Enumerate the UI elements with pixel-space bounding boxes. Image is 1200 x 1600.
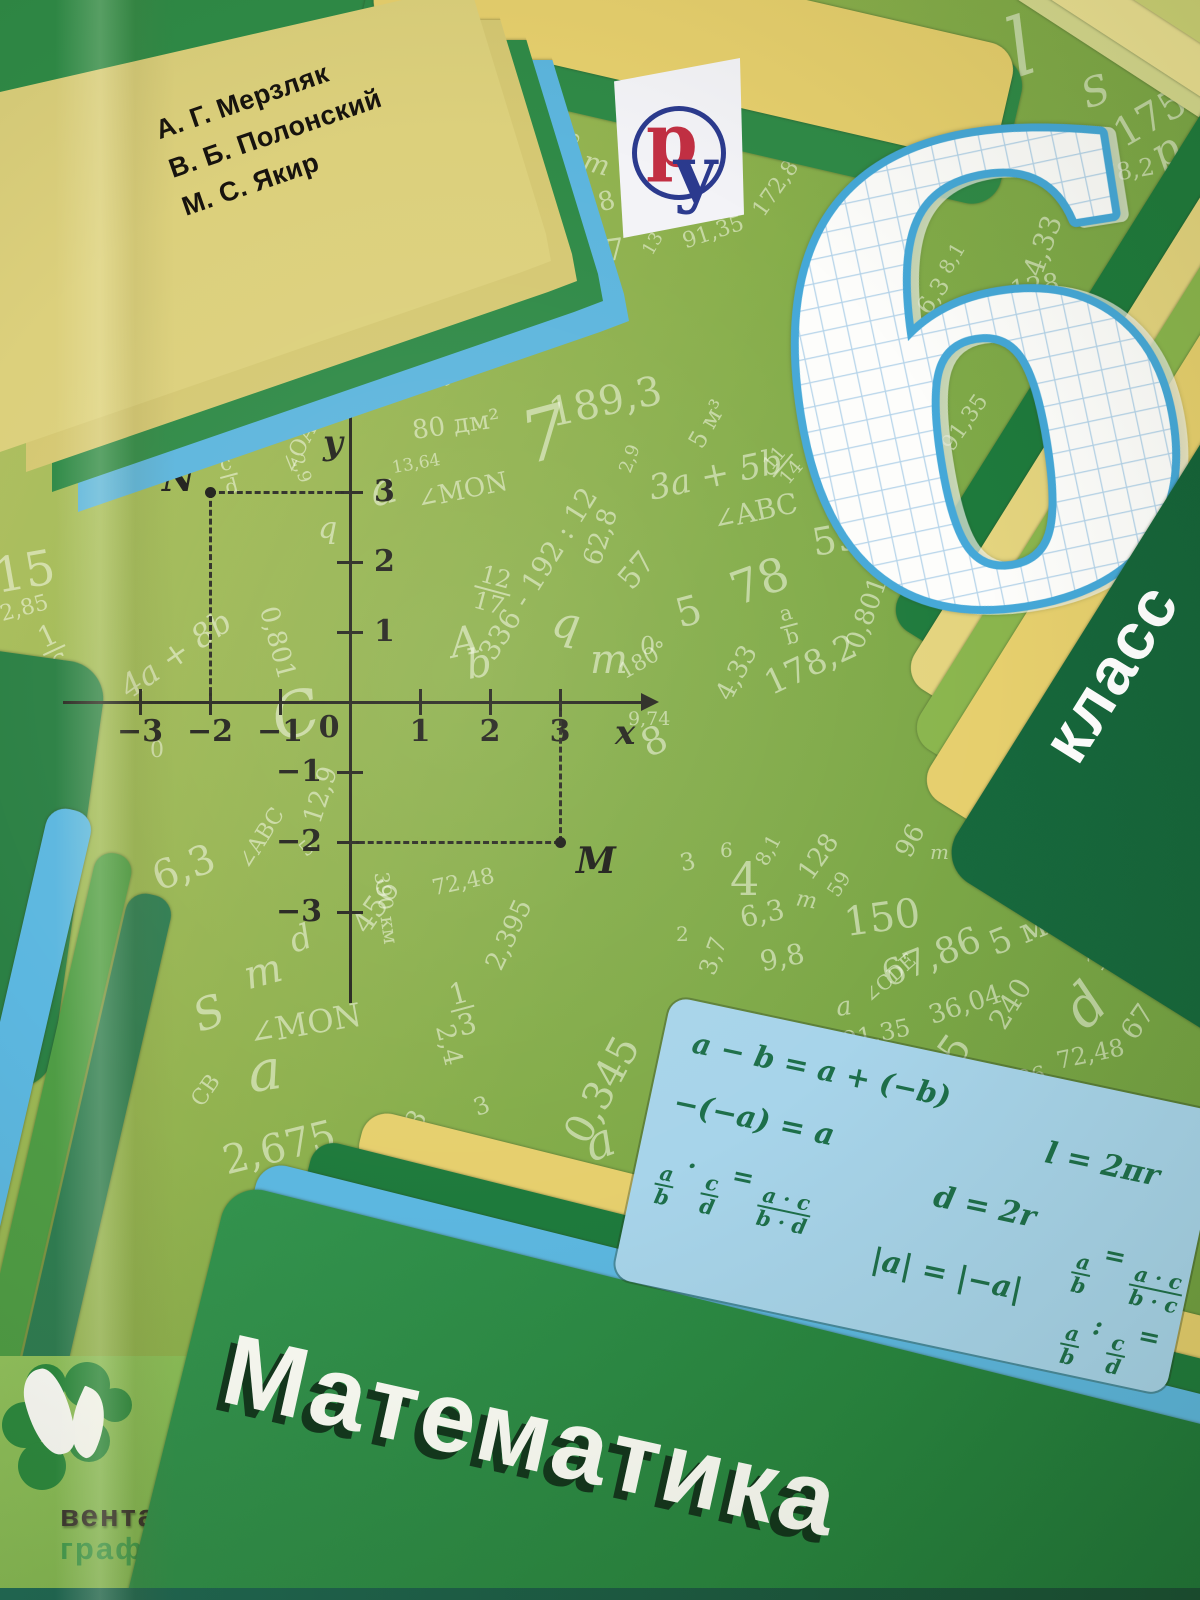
math-scribble: CB: [188, 1071, 225, 1111]
book-bottom-edge: [0, 1588, 1200, 1600]
point-label: M: [576, 840, 616, 882]
formula: ab = a · cb · c: [1067, 1234, 1191, 1318]
y-tick-label: −1: [266, 754, 322, 789]
x-tick: [139, 689, 142, 715]
point-guide-dashed: [209, 492, 212, 702]
publisher-name-line2: граф: [60, 1531, 144, 1567]
brand-letter-u: у: [672, 130, 719, 216]
formula: ab · cd = a · cb · d: [650, 1145, 818, 1239]
math-scribble: 3: [470, 1092, 493, 1120]
math-scribble: a: [244, 1042, 285, 1102]
y-tick-label: −3: [266, 894, 322, 929]
math-scribble: 72,48: [1054, 1035, 1126, 1073]
y-tick: [337, 631, 363, 634]
x-tick-label: 1: [390, 714, 450, 749]
math-scribble: 6: [720, 840, 733, 860]
y-tick: [337, 561, 363, 564]
y-tick: [337, 911, 363, 914]
point-guide-dashed: [210, 491, 350, 494]
math-scribble: m: [930, 842, 949, 862]
formula: |a| = |−a|: [868, 1242, 1026, 1308]
formula: ab : cd =: [1055, 1305, 1162, 1386]
y-tick: [337, 771, 363, 774]
x-tick: [419, 689, 422, 715]
math-scribble: m: [794, 888, 818, 913]
origin-label: 0: [314, 710, 344, 745]
math-scribble: a: [834, 993, 853, 1021]
x-tick-label: 2: [460, 714, 520, 749]
math-scribble: 150: [842, 893, 923, 943]
point-guide-dashed: [350, 841, 560, 844]
x-tick-label: −3: [110, 714, 170, 749]
x-axis-arrow-icon: [641, 693, 659, 711]
x-tick-label: −2: [180, 714, 240, 749]
x-axis-label: x: [615, 713, 635, 753]
math-scribble: ab: [770, 587, 804, 651]
plotted-point: [555, 837, 566, 848]
y-axis-label: y: [323, 423, 343, 463]
y-tick-label: 1: [374, 614, 430, 649]
formula: d = 2r: [930, 1179, 1039, 1235]
y-axis: [349, 413, 352, 1003]
y-tick-label: 3: [374, 474, 430, 509]
point-guide-dashed: [559, 702, 562, 842]
x-tick-label: −1: [250, 714, 310, 749]
math-scribble: 15: [0, 543, 59, 601]
x-tick: [489, 689, 492, 715]
math-scribble: 4,33: [712, 641, 762, 704]
math-scribble: 4: [730, 856, 759, 902]
brand-logo: р у: [610, 58, 744, 238]
y-tick-label: 2: [374, 544, 430, 579]
math-scribble: 96: [891, 820, 929, 861]
book-cover: 100396128m421,86,89,82,43,71391,35C58172…: [0, 0, 1200, 1600]
math-scribble: 9,8: [758, 940, 807, 977]
math-scribble: d: [1053, 974, 1118, 1039]
formula: l = 2πr: [1042, 1135, 1163, 1193]
x-tick: [279, 689, 282, 715]
math-scribble: 67: [1116, 999, 1159, 1044]
math-scribble: 3,7: [695, 934, 731, 978]
math-scribble: 59: [824, 868, 854, 900]
y-tick-label: −2: [266, 824, 322, 859]
x-axis: [63, 701, 643, 704]
formula: −(−a) = a: [670, 1085, 837, 1153]
math-scribble: 6,3: [738, 896, 787, 933]
plotted-point: [205, 487, 216, 498]
math-scribble: ∠ABC: [710, 489, 800, 534]
